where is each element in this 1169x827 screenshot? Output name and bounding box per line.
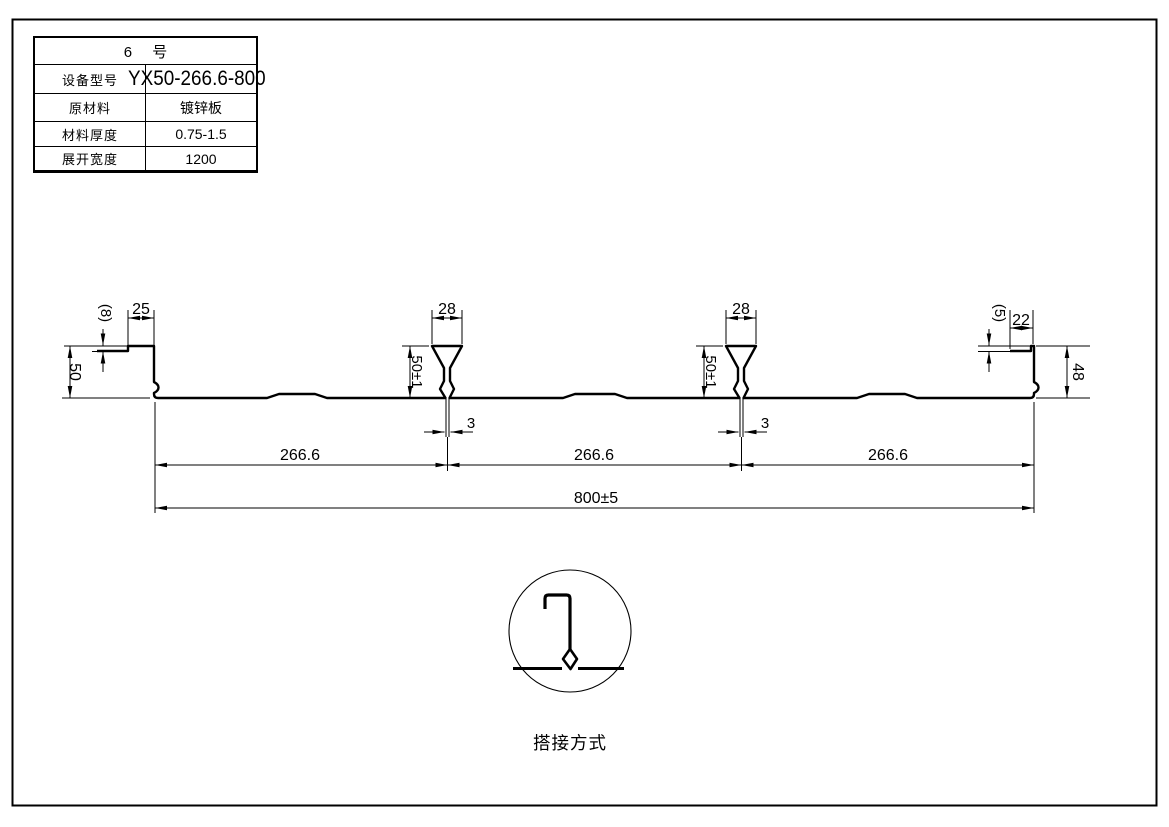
dim-span-3: 266.6 — [868, 447, 908, 464]
table-row: 展开宽度 1200 — [35, 147, 256, 171]
dim-overall-width: 800±5 — [574, 490, 618, 507]
row-label: 原材料 — [35, 94, 146, 121]
drawing-sheet: 25 (8) 50 28 50±1 3 28 50±1 3 (5) 22 48 … — [0, 0, 1169, 827]
dim-rib1-stem-width: 3 — [467, 415, 475, 432]
dim-span-2: 266.6 — [574, 447, 614, 464]
row-value: 1200 — [146, 147, 256, 170]
row-label: 展开宽度 — [35, 147, 146, 170]
lap-joint-detail — [509, 570, 631, 692]
detail-caption: 搭接方式 — [533, 733, 607, 753]
dim-right-lip-width: 22 — [1012, 312, 1030, 329]
dim-rib2-stem-width: 3 — [761, 415, 769, 432]
dim-rib1-height: 50±1 — [408, 355, 425, 388]
dim-rib2-height: 50±1 — [702, 355, 719, 388]
dimension-lines — [62, 310, 1090, 513]
dim-right-height: 48 — [1069, 363, 1086, 381]
dim-left-height: 50 — [66, 363, 83, 381]
table-title: 6 号 — [35, 38, 256, 65]
dim-rib1-top-width: 28 — [438, 301, 456, 318]
table-row: 材料厚度 0.75-1.5 — [35, 122, 256, 147]
dim-span-1: 266.6 — [280, 447, 320, 464]
spec-table: 6 号 设备型号 原材料 镀锌板 材料厚度 0.75-1.5 展开宽度 1200… — [33, 36, 258, 173]
dim-left-top-flange: 25 — [132, 301, 150, 318]
detail-hook-profile — [545, 595, 570, 649]
equipment-model-number: YX50-266.6-800 — [128, 65, 266, 94]
row-value: 镀锌板 — [146, 94, 256, 121]
dim-right-lip-step: (5) — [991, 304, 1008, 322]
deck-profile-outline — [97, 346, 1039, 398]
row-label: 材料厚度 — [35, 122, 146, 146]
table-row: 原材料 镀锌板 — [35, 94, 256, 122]
dim-left-lip-step: (8) — [97, 304, 114, 322]
detail-seam-diamond — [563, 649, 577, 669]
row-value: 0.75-1.5 — [146, 122, 256, 146]
dim-rib2-top-width: 28 — [732, 301, 750, 318]
